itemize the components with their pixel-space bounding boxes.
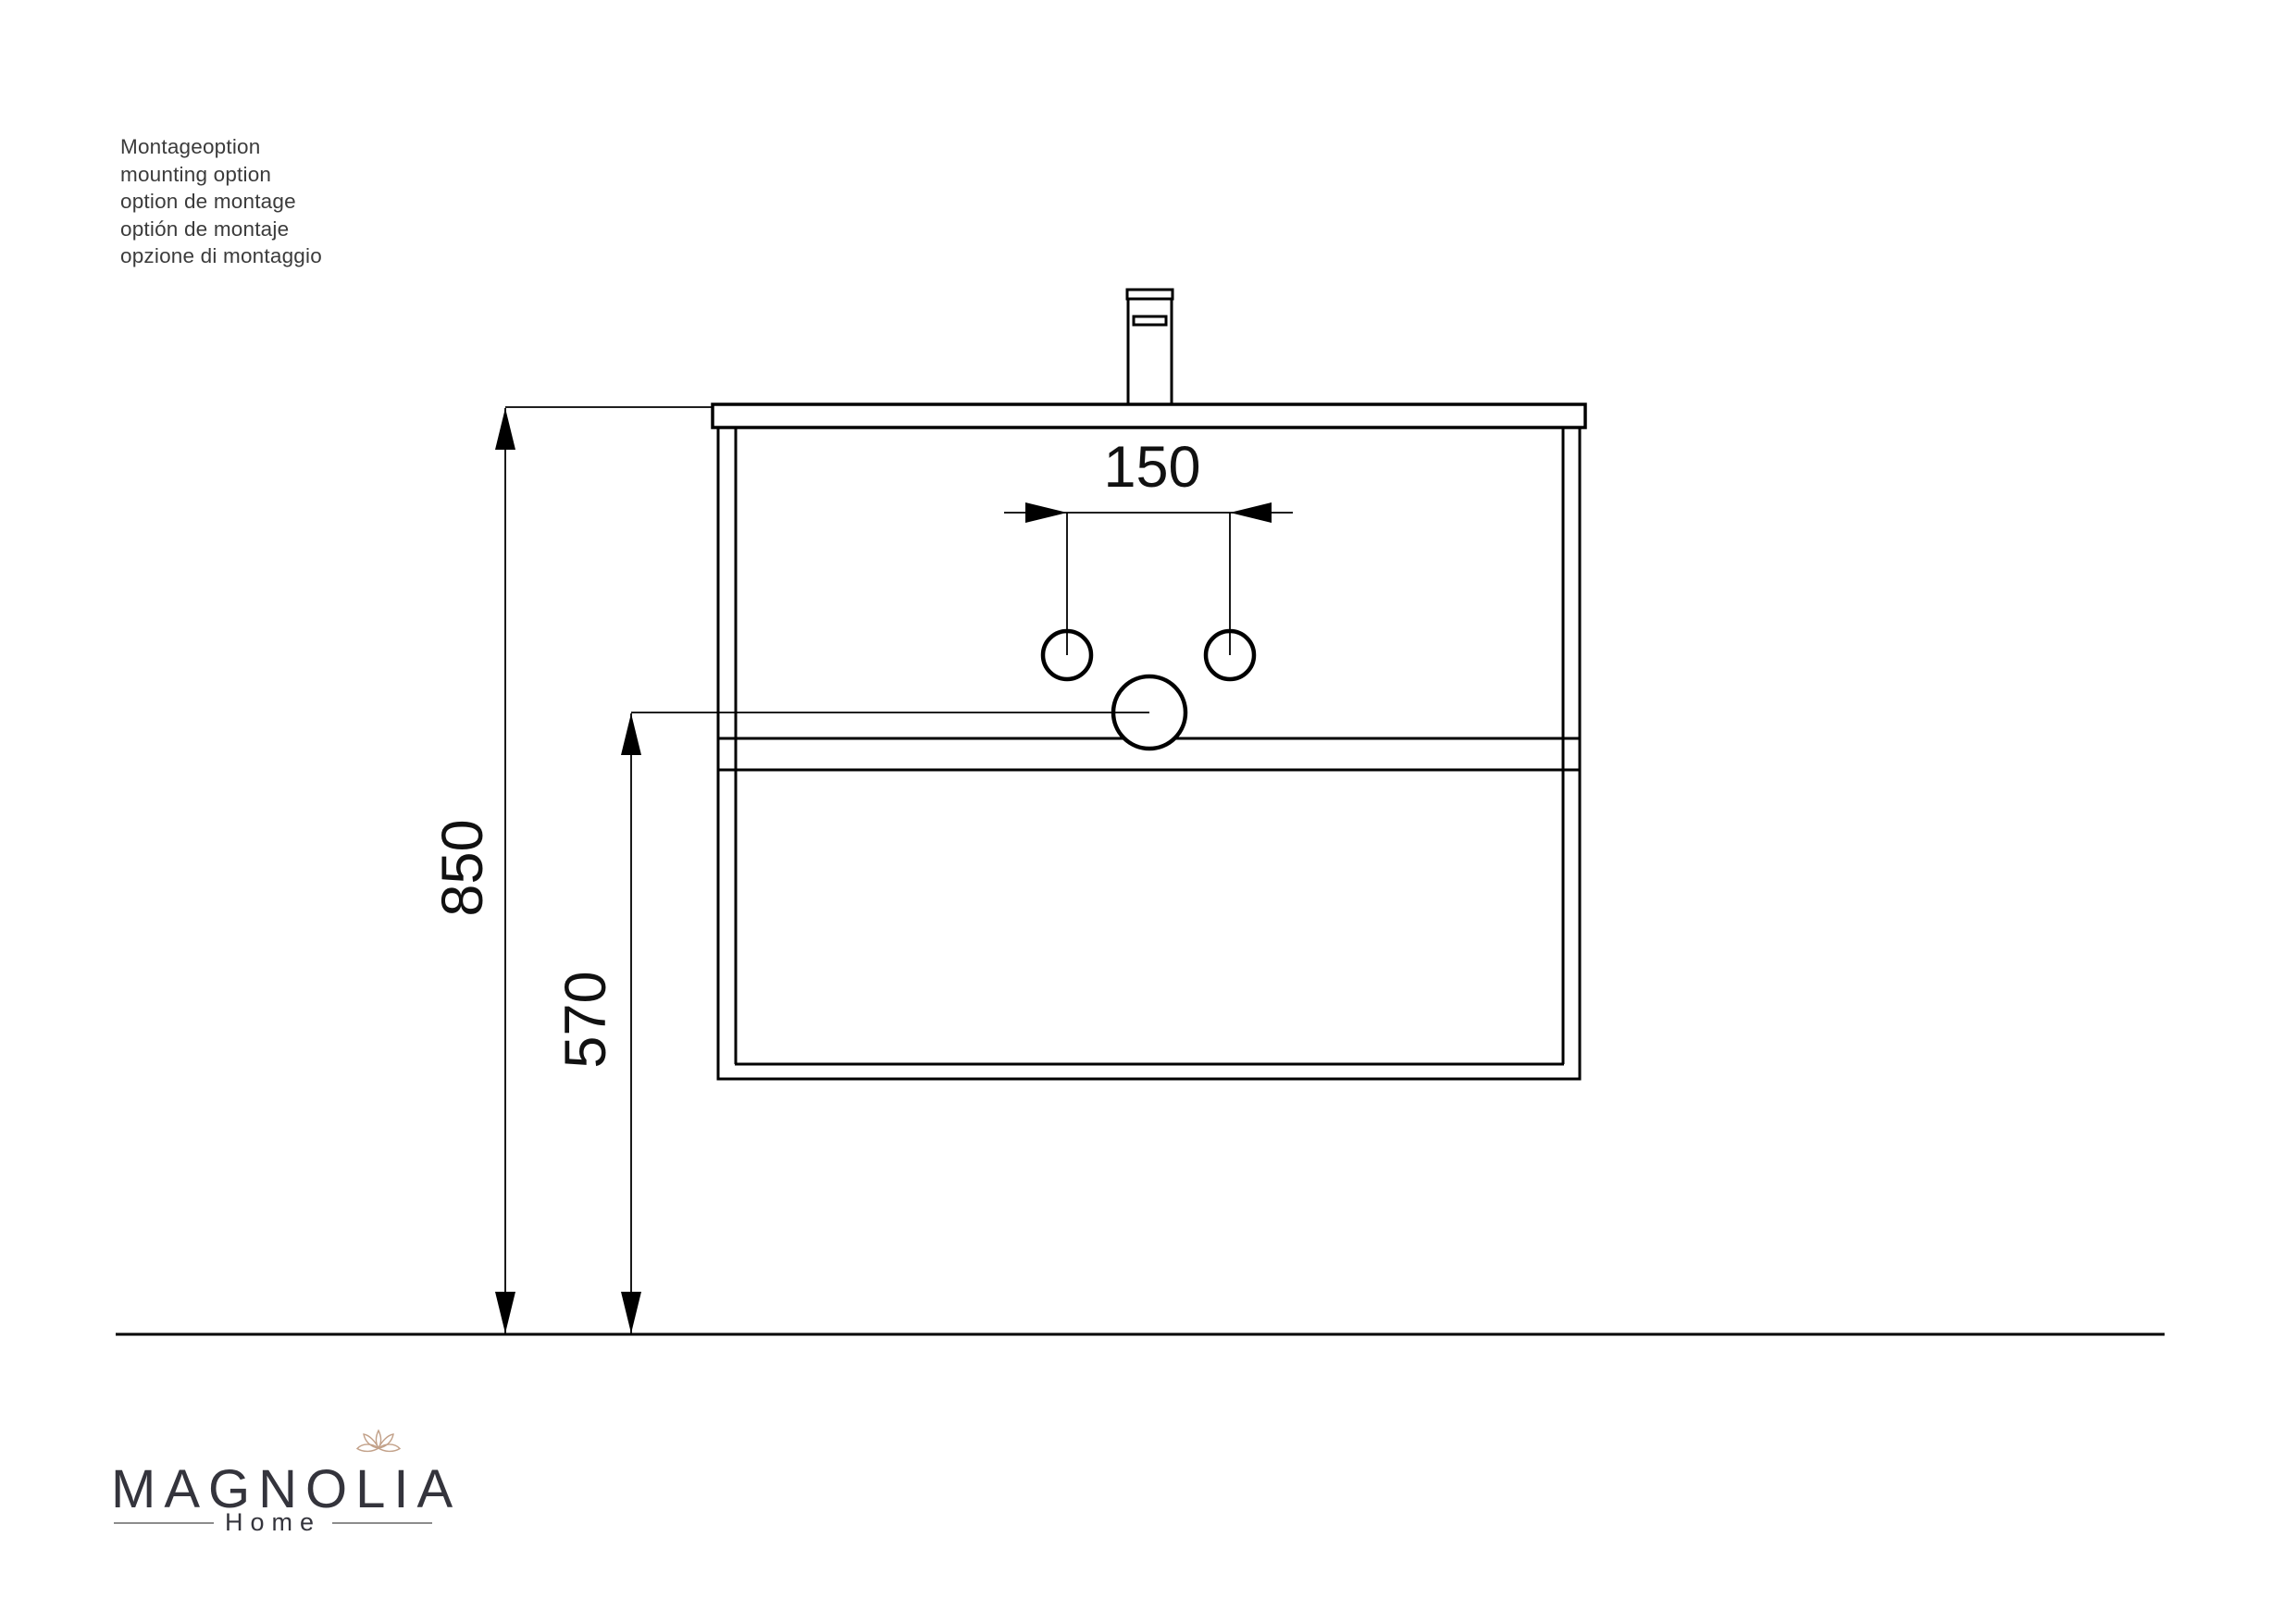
faucet-spout-slot [1134,316,1166,325]
dim-label-tap-hole-spacing: 150 [1103,434,1200,501]
dimension-850 [495,407,713,1333]
arrow-right-icon [1025,502,1067,523]
cabinet-carcass [717,427,1582,1079]
arrow-up-icon [621,713,641,755]
logo-divider-right [332,1522,432,1524]
logo-divider-left [114,1522,214,1524]
mounting-option-drawing-page: Montageoption mounting option option de … [0,0,2296,1623]
logo-tagline-row: Home [114,1508,432,1537]
arrow-left-icon [1230,502,1272,523]
dim-label-drain-height: 570 [552,971,619,1068]
vanity-technical-drawing [0,0,2296,1623]
arrow-up-icon [495,408,515,450]
magnolia-flower-icon [355,1429,402,1462]
faucet-cap [1127,290,1173,299]
faucet [1127,290,1173,404]
logo-tagline-text: Home [225,1508,321,1537]
washbasin-top [713,404,1585,427]
dim-label-total-height: 850 [429,819,496,916]
dimension-150 [1004,502,1293,655]
arrow-down-icon [621,1292,641,1333]
dimension-570 [621,712,1149,1333]
arrow-down-icon [495,1292,515,1333]
